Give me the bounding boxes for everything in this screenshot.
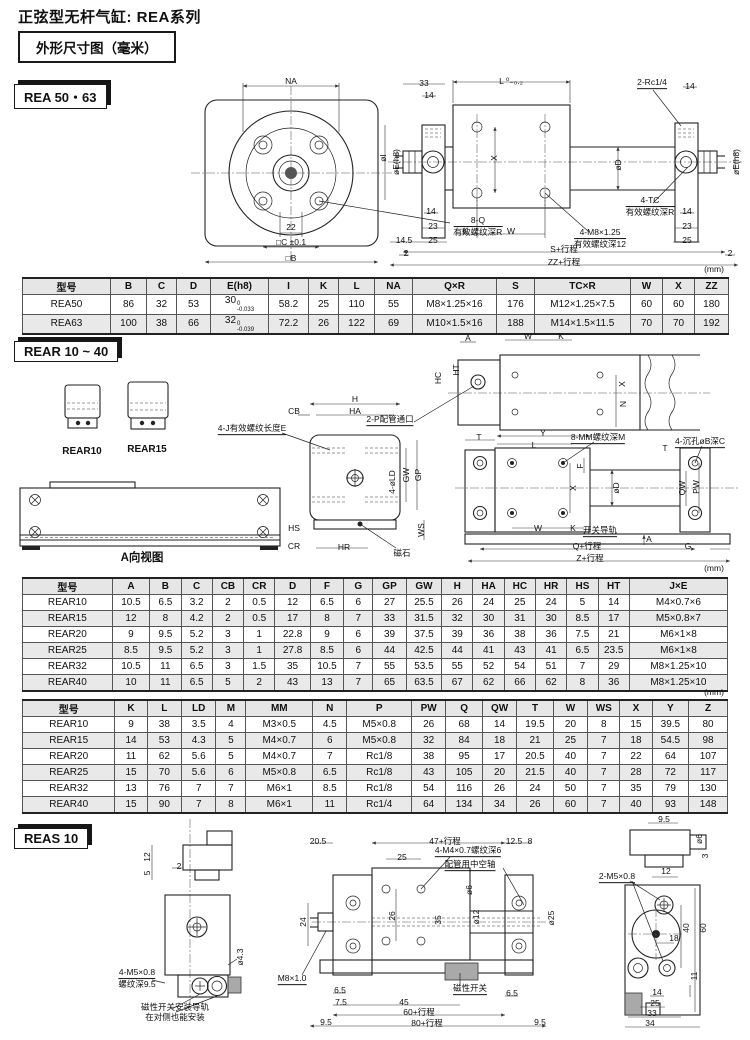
dim-label: 12.5 bbox=[506, 836, 523, 846]
dim-label: M8×1.0 bbox=[278, 973, 307, 985]
dim-label: ø6 bbox=[694, 834, 704, 844]
dim-label: 45 bbox=[399, 997, 408, 1007]
dim-label: 6.5 bbox=[334, 985, 346, 995]
dim-label: 8 bbox=[528, 836, 533, 846]
dim-label: 磁性开关安装导轨在对侧也能安装 bbox=[141, 1002, 209, 1022]
reas-label-layer: 1252ø4.34-M5×0.8螺纹深9.5磁性开关安装导轨在对侧也能安装20.… bbox=[0, 0, 750, 1040]
dim-label: 24 bbox=[298, 917, 308, 926]
dim-label: 34 bbox=[645, 1018, 654, 1028]
dim-label: 6.5 bbox=[506, 988, 518, 998]
dim-label: 60 bbox=[698, 923, 708, 932]
catalog-page: 正弦型无杆气缸: REA系列 外形尺寸图（毫米） REA 50・63 REAR … bbox=[0, 0, 750, 1040]
dim-label: ø6 bbox=[464, 885, 474, 895]
dim-label: 9.5 bbox=[320, 1017, 332, 1027]
dim-label: 40 bbox=[681, 923, 691, 932]
dim-label: 12 bbox=[661, 866, 670, 876]
dim-label: 3 bbox=[700, 854, 710, 859]
dim-label: 60+行程 bbox=[403, 1007, 434, 1017]
dim-label: 4-M4×0.7螺纹深6 bbox=[435, 845, 501, 857]
dim-label: 35 bbox=[433, 915, 443, 924]
dim-label: 33 bbox=[647, 1008, 656, 1018]
dim-label: ø25 bbox=[546, 911, 556, 926]
dim-label: ø4.3 bbox=[235, 948, 245, 965]
dim-label: 25 bbox=[650, 998, 659, 1008]
dim-label: 11 bbox=[689, 972, 699, 981]
dim-label: 18 bbox=[669, 933, 678, 943]
dim-label: 7.5 bbox=[335, 997, 347, 1007]
dim-label: 12 bbox=[142, 852, 152, 861]
dim-label: 14 bbox=[652, 987, 661, 997]
dim-label: 4-M5×0.8螺纹深9.5 bbox=[118, 967, 155, 989]
dim-label: 配管用中空轴 bbox=[444, 859, 495, 871]
dim-label: 9.5 bbox=[658, 814, 670, 824]
dim-label: ø12 bbox=[471, 910, 481, 925]
dim-label: 20.5 bbox=[310, 836, 327, 846]
dim-label: 2-M5×0.8 bbox=[599, 871, 635, 883]
dim-label: 47+行程 bbox=[429, 836, 460, 846]
dim-label: 9.5 bbox=[534, 1017, 546, 1027]
dim-label: 26 bbox=[387, 911, 397, 920]
dim-label: 5 bbox=[142, 871, 152, 876]
dim-label: 25 bbox=[397, 852, 406, 862]
dim-label: 2 bbox=[177, 861, 182, 871]
dim-label: 磁性开关 bbox=[453, 983, 487, 995]
dim-label: 80+行程 bbox=[411, 1018, 442, 1028]
